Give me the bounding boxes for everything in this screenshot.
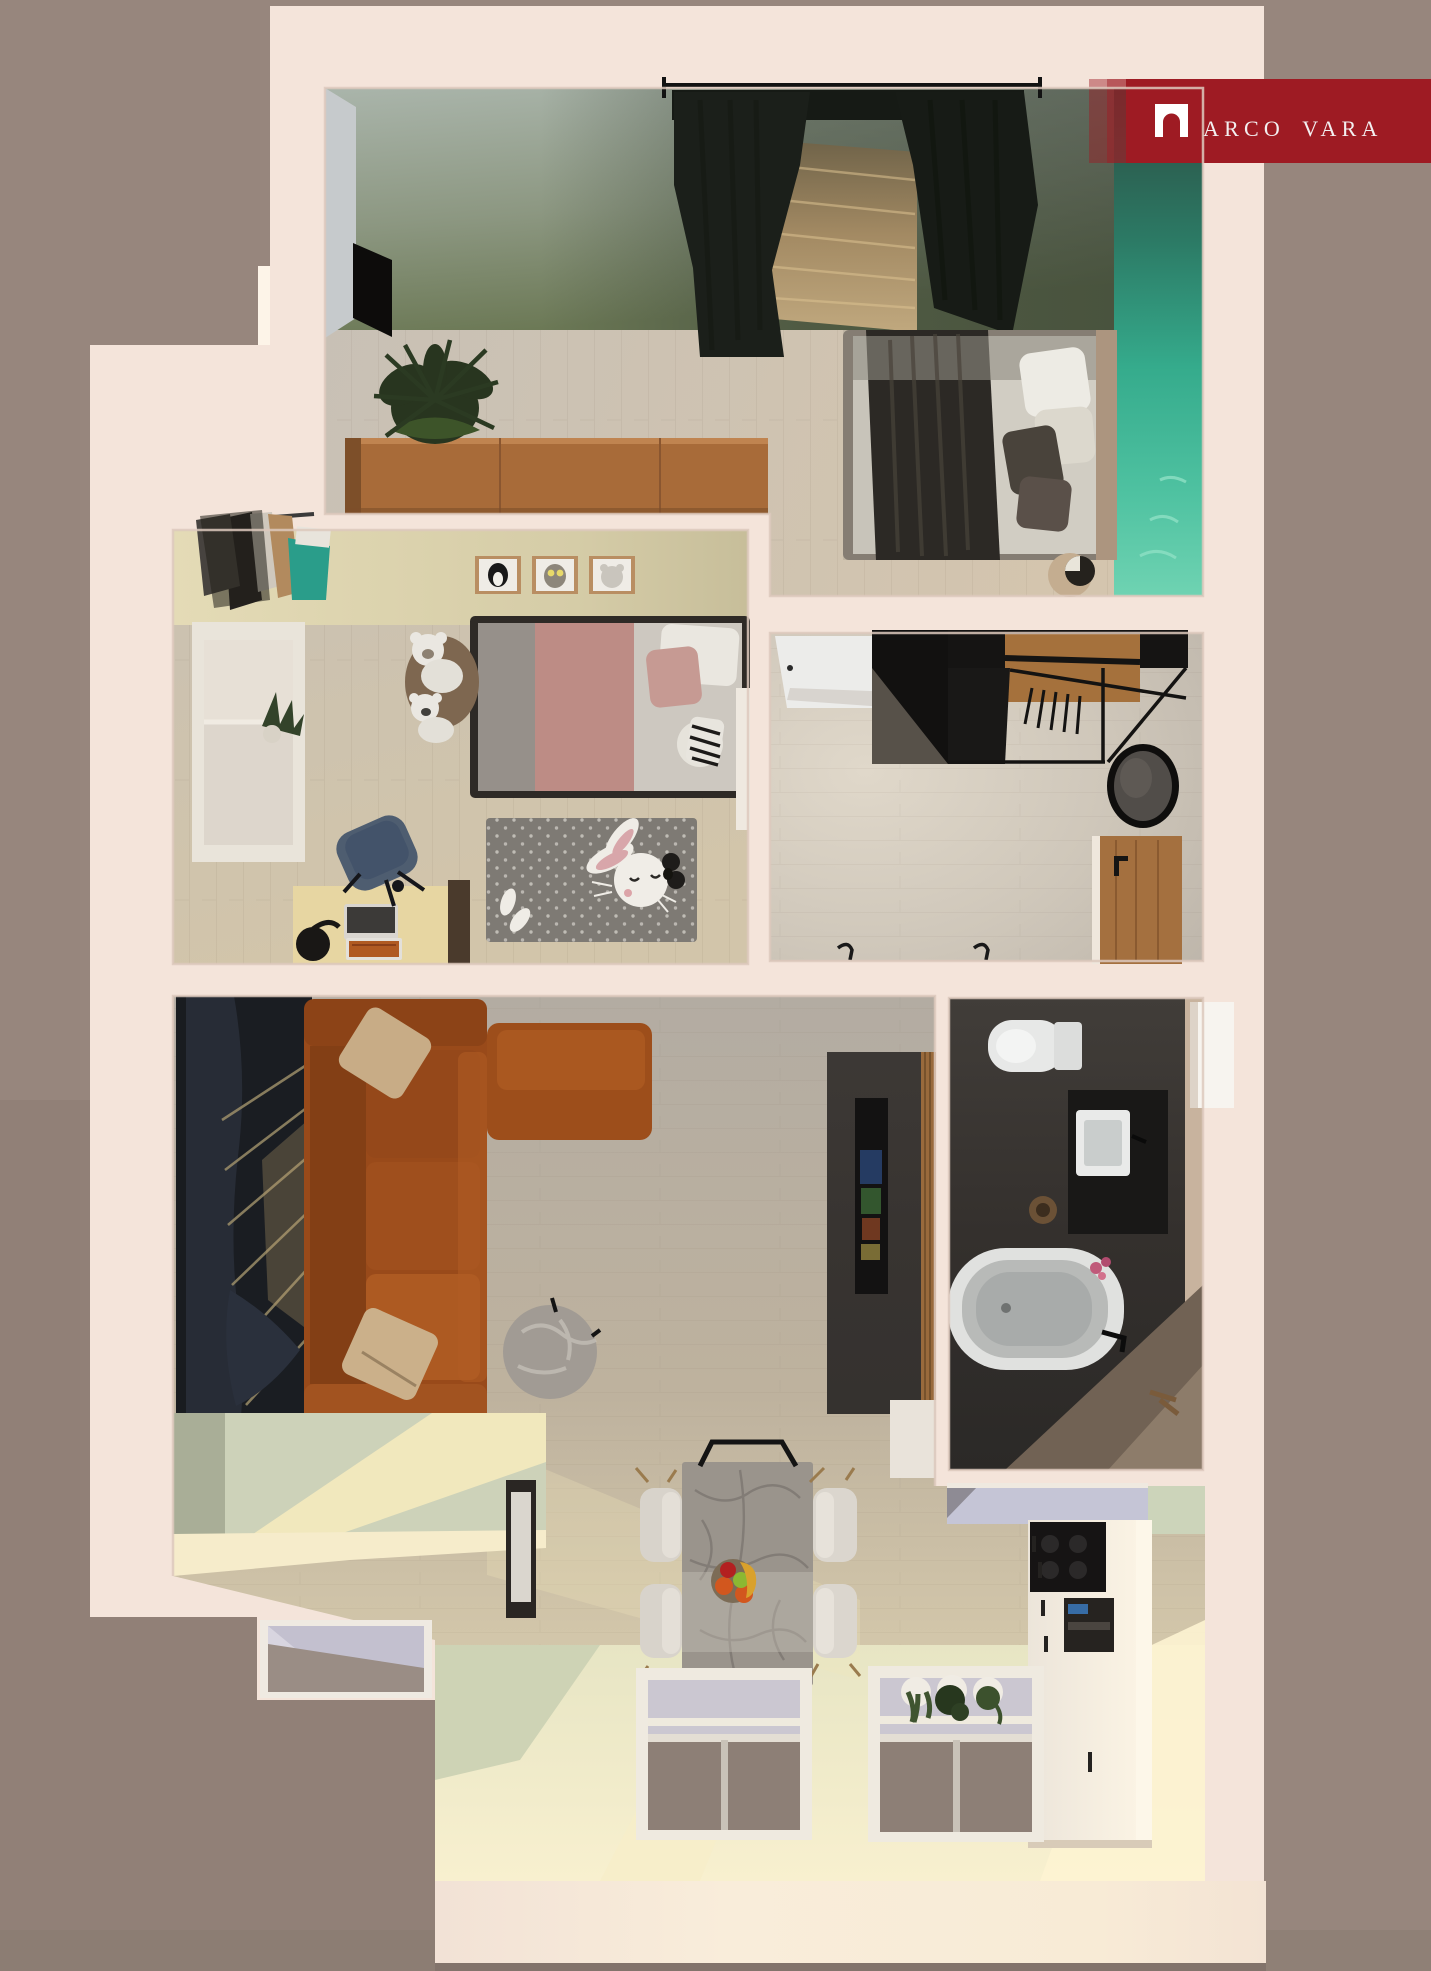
svg-text:ARCO VARA: ARCO VARA (1203, 116, 1383, 141)
